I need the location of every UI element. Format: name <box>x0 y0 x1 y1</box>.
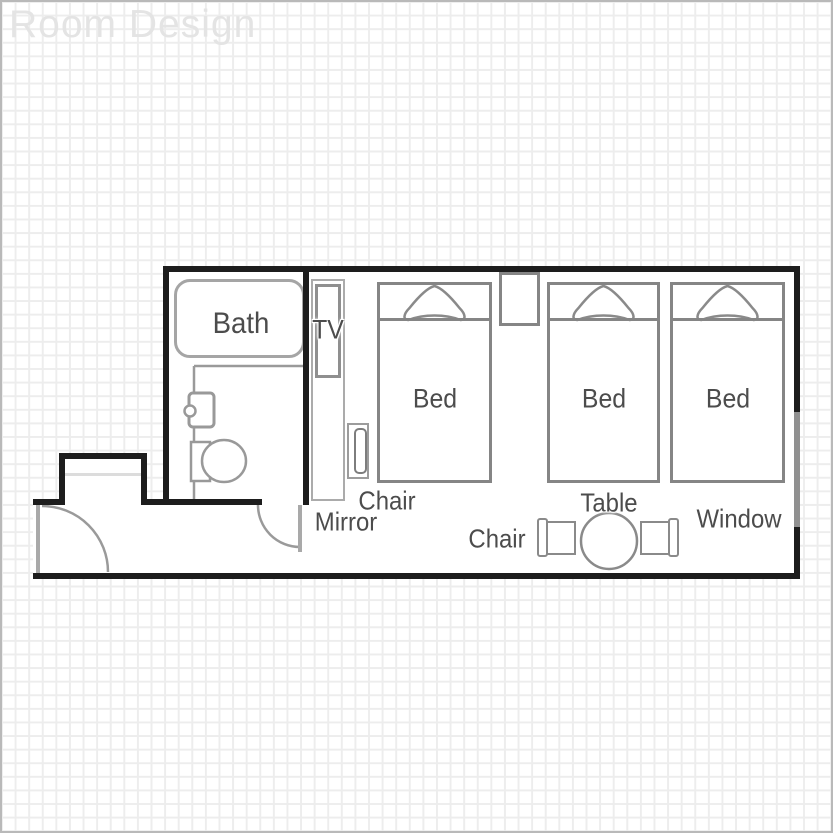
bed-3-label: Bed <box>706 384 750 415</box>
page-title: Room Design <box>9 3 256 47</box>
bed-3-pillow-line <box>672 318 783 321</box>
entrance-door-leaf <box>36 505 40 573</box>
dining-chair-right <box>640 521 670 555</box>
wall-right-upper <box>794 266 800 412</box>
bed-2-label: Bed <box>582 384 626 415</box>
nightstand <box>499 272 540 326</box>
room-design-canvas: Room Design <box>0 0 833 833</box>
bed-2-pillow-line <box>549 318 658 321</box>
wall-bathroom-right <box>303 266 309 505</box>
wall-entry-top-right <box>141 499 169 505</box>
dining-chair-label: Chair <box>468 524 525 555</box>
bed-2 <box>547 282 660 483</box>
wall-alcove-top <box>59 453 147 459</box>
dining-chair-left <box>546 521 576 555</box>
alcove-shelf-line <box>65 473 141 476</box>
entrance-corridor-floor <box>33 499 169 579</box>
tv-label: TV <box>312 315 344 346</box>
wall-bathroom-bottom <box>163 499 262 505</box>
bathroom-door-leaf <box>298 505 302 552</box>
wall-bottom <box>33 573 800 579</box>
bath-label: Bath <box>213 307 270 341</box>
mirror-label: Mirror <box>315 507 377 538</box>
bed-1 <box>377 282 492 483</box>
window-label: Window <box>696 504 781 535</box>
wall-alcove-right <box>141 453 147 505</box>
bed-1-pillow-line <box>379 318 490 321</box>
desk-chair-seat <box>354 428 367 474</box>
wall-alcove-left <box>59 453 65 505</box>
bed-1-label: Bed <box>413 384 457 415</box>
wall-bathroom-left <box>163 266 169 505</box>
wall-top <box>163 266 800 272</box>
entry-alcove-floor <box>59 453 147 505</box>
wall-right-lower <box>794 527 800 579</box>
window-wall <box>794 412 800 527</box>
bed-3 <box>670 282 785 483</box>
dining-chair-right-backrest <box>668 518 679 557</box>
table-label: Table <box>580 488 637 519</box>
